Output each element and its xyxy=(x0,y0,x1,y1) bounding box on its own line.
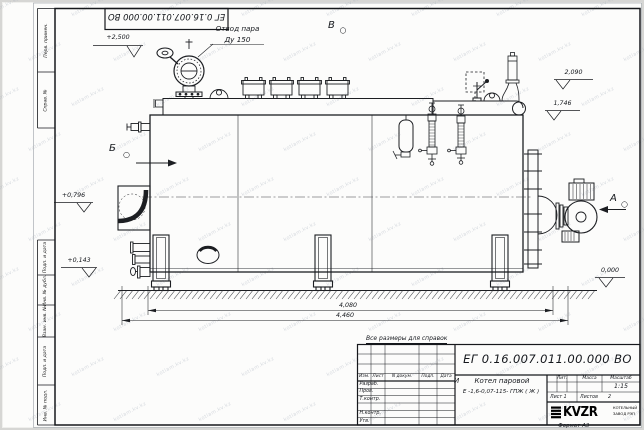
elevation-marks xyxy=(54,46,625,288)
steam-drum-top xyxy=(154,99,523,116)
burner-fan-unit xyxy=(538,179,597,242)
boiler-side-view xyxy=(54,28,627,325)
vent-pipe xyxy=(502,53,526,116)
tb-row-razrab: Разраб. xyxy=(360,382,379,387)
view-arrows xyxy=(124,28,628,213)
level-gauge-2 xyxy=(448,105,466,164)
elevation-label-ground: 0,000 xyxy=(595,268,625,275)
tb-sheets-label: Листов xyxy=(580,395,598,400)
format-label: Формат А3 xyxy=(558,424,589,430)
elevation-label-front-mid: +0,796 xyxy=(54,193,93,200)
valve-handwheel xyxy=(157,48,178,64)
dimension-label-4080: 4,080 xyxy=(318,303,378,310)
title-designation: ЕГ 0.16.007.011.00.000 ВО xyxy=(455,353,640,365)
tb-col-data: Дата xyxy=(437,375,455,380)
company-name-line2: ЗАВОД РЭП xyxy=(613,413,635,417)
margin-field-podp-data-1: Подп. и дата xyxy=(37,240,55,275)
product-model: Е -1,6-0,07-115- ГПЖ ( Ж ) xyxy=(455,390,547,396)
dimension-label-4460: 4,460 xyxy=(315,313,375,320)
tb-sheets-total: 2 xyxy=(608,395,611,400)
margin-field-inv-dubl: Инв. № дубл. xyxy=(37,275,55,305)
top-designation: ЕГ 0.16.007.011.00.000 ВО xyxy=(105,11,228,20)
rear-top-fittings xyxy=(466,53,526,116)
drum-hatches xyxy=(242,78,350,99)
gauge-vessel xyxy=(393,115,413,159)
steam-label-leader xyxy=(198,44,213,57)
ground-hatching xyxy=(114,291,595,299)
rear-flange xyxy=(524,150,542,268)
water-gauge-fittings xyxy=(393,103,466,165)
tb-scale-header: Масштаб xyxy=(602,377,640,382)
elevation-label-rear-high: 2,090 xyxy=(554,70,593,77)
product-name: Котел паровой xyxy=(459,378,545,385)
steam-outlet-label-line2: Ду 150 xyxy=(210,36,265,44)
tb-row-utv: Утв. xyxy=(360,419,370,424)
tb-col-izm: Изм. xyxy=(358,375,372,380)
view-label-v: В xyxy=(328,21,335,32)
reference-note: Все размеры для справок xyxy=(366,336,447,344)
level-gauge-1 xyxy=(419,103,437,165)
view-label-a: А xyxy=(610,194,617,205)
view-marker-v xyxy=(340,28,346,34)
burner-motor xyxy=(569,179,594,200)
elevation-label-top: +2,500 xyxy=(93,35,143,42)
front-tap xyxy=(127,122,150,132)
manhole xyxy=(197,247,219,264)
front-door xyxy=(118,186,150,230)
margin-field-perv-primen: Перв. примен. xyxy=(37,9,55,73)
elevation-label-rear-mid: 1,746 xyxy=(545,101,580,108)
tb-col-list: Лист xyxy=(371,375,385,380)
tb-lit-header: Лит. xyxy=(547,377,577,382)
tb-sheet-no: Лист 1 xyxy=(550,395,567,400)
tb-scale-value: 1:15 xyxy=(602,384,640,391)
drawing-sheet: kotlam.kv.kzkotlam.kv.kzkotlam.kv.kzkotl… xyxy=(0,0,644,430)
margin-field-sprav-no: Справ. № xyxy=(37,72,55,128)
tb-row-prov: Пров. xyxy=(360,389,374,394)
margin-field-vzam-inv: Взам. инв. № xyxy=(37,305,55,337)
tb-row-nkontr: Н.контр. xyxy=(360,411,381,416)
fan-volute xyxy=(565,201,597,233)
burner-gas-elbow xyxy=(118,190,146,221)
ground-line xyxy=(114,291,597,300)
tb-row-tkontr: Т.контр. xyxy=(360,397,381,402)
view-label-b: Б xyxy=(109,144,116,155)
company-name-line1: КОТЕЛЬНЫЙ xyxy=(613,407,637,411)
steam-outlet-valve xyxy=(157,39,204,99)
steam-outlet-label-line1: Отвод пара xyxy=(210,25,265,33)
front-nozzles xyxy=(131,242,151,278)
tb-mass-header: Масса xyxy=(577,377,602,382)
kvzr-logo-text: KVZR xyxy=(563,405,597,419)
kvzr-logo-icon xyxy=(551,407,561,419)
tb-col-ndokum: N докум. xyxy=(385,375,419,380)
elevation-label-front-low: +0,143 xyxy=(61,258,97,265)
tb-col-podp: Подп. xyxy=(419,375,437,380)
margin-field-podp-data-2: Подп. и дата xyxy=(37,337,55,385)
margin-field-inv-podl: Инв. № подл. xyxy=(37,385,55,425)
lever-safety-valve xyxy=(473,80,489,102)
